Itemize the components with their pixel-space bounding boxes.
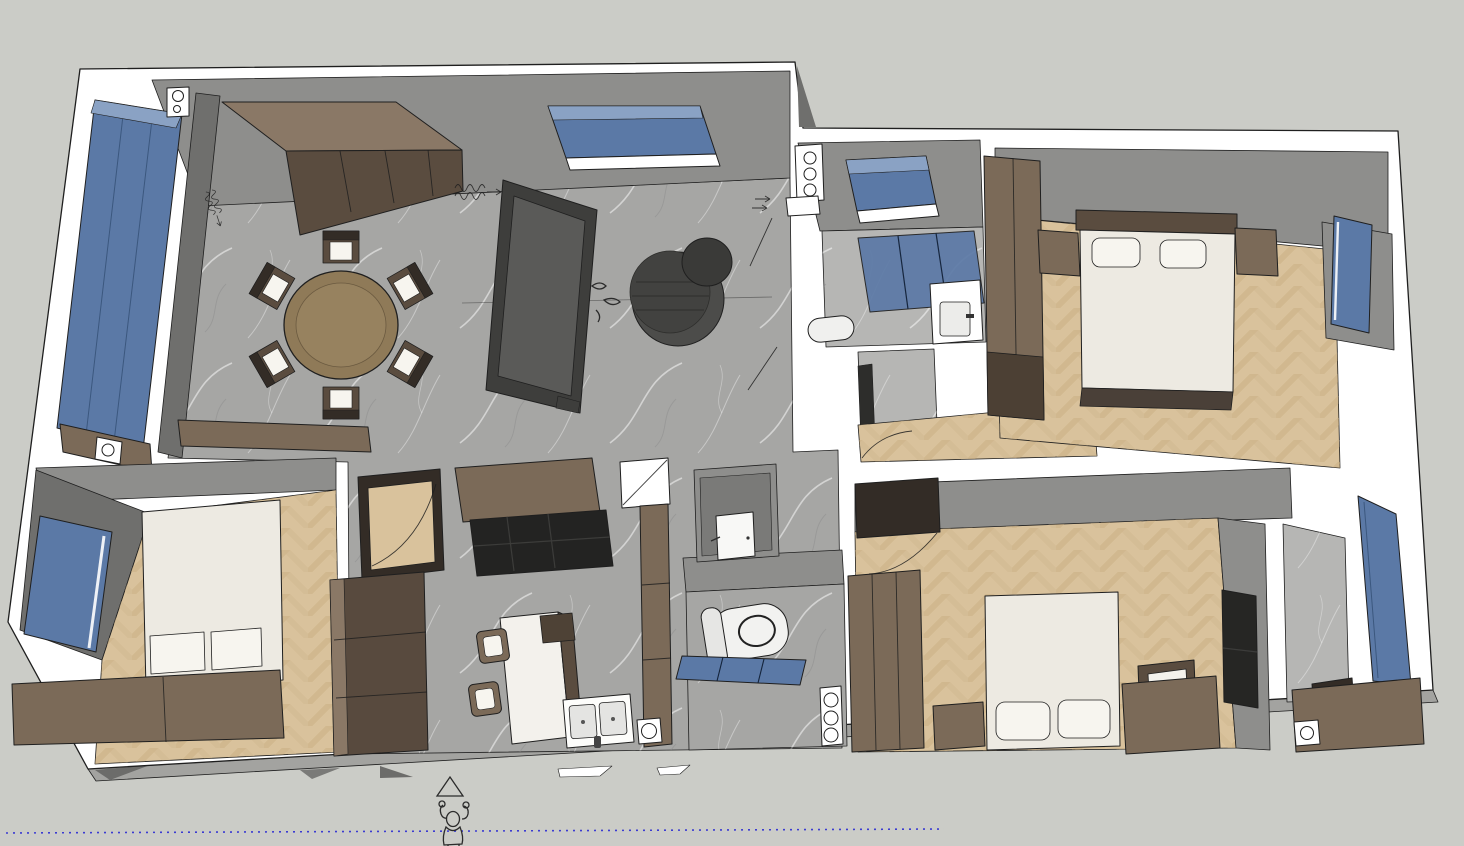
bed-pillow	[1058, 700, 1110, 738]
bedroom3-tall-wardrobe[interactable]	[848, 570, 924, 752]
washbasin	[940, 302, 970, 336]
bed-bottom-right[interactable]	[985, 592, 1120, 750]
drain-plate	[637, 718, 662, 744]
floorplan-canvas[interactable]	[0, 0, 1464, 846]
bed-pillow	[1160, 240, 1206, 268]
nightstand[interactable]	[1235, 228, 1278, 276]
bedroom3-corner-wardrobe[interactable]	[855, 478, 940, 538]
niche-door[interactable]	[716, 512, 755, 560]
room-bedroom-bottom-right	[848, 468, 1292, 754]
wc-outlet-plate	[820, 686, 843, 746]
dining-chair[interactable]	[323, 231, 359, 263]
island-hob	[540, 613, 575, 643]
bedroom1-doorway-floor	[368, 481, 435, 570]
nightstand[interactable]	[933, 702, 985, 750]
bed-pillow	[150, 632, 205, 674]
bar-stool[interactable]	[468, 681, 502, 717]
nightstand[interactable]	[1038, 230, 1080, 276]
bed-pillow	[1092, 238, 1140, 267]
dining-chair[interactable]	[323, 387, 359, 419]
sofa[interactable]	[486, 180, 597, 413]
hinge-circle-top	[173, 91, 184, 102]
hinge-circle-bottom	[174, 106, 181, 113]
bath-shelf	[786, 196, 820, 216]
basin-faucet	[966, 314, 974, 318]
skylight-window-living[interactable]	[548, 106, 720, 170]
bed-bottom-left[interactable]	[142, 500, 283, 690]
side-table[interactable]	[682, 238, 732, 286]
floor-drain-plate	[95, 437, 122, 464]
cooktop-counter[interactable]	[470, 510, 613, 576]
bed-footboard	[1080, 388, 1233, 410]
bar-stool[interactable]	[476, 628, 510, 664]
bath2-drain-plate	[1294, 720, 1320, 746]
bed-pillow	[211, 628, 262, 670]
dining-table-top	[296, 283, 386, 367]
tall-cabinet[interactable]	[640, 504, 672, 747]
bed-pillow	[996, 702, 1050, 740]
dresser[interactable]	[1122, 676, 1220, 754]
sink-faucet	[594, 736, 601, 748]
room-bedroom-top-right	[984, 148, 1394, 468]
sketchup-scene[interactable]	[0, 0, 1464, 846]
